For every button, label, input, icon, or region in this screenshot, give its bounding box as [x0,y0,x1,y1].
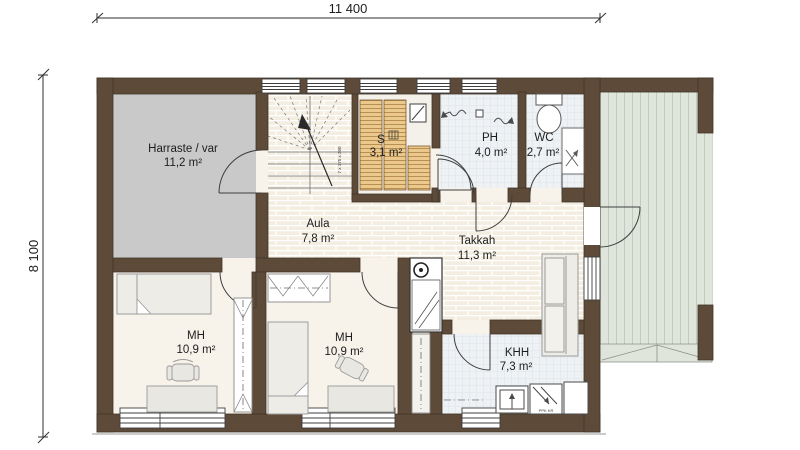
wc-cabinet-symbol [562,128,584,174]
window-symbol [262,79,300,93]
terrace-deck [598,90,712,362]
room-area-wc: 2,7 m² [527,147,560,159]
wall-left [97,78,113,432]
room-harraste-floor [113,94,256,258]
sink-symbol [496,386,528,413]
closet-symbol [268,274,330,302]
window-symbol [462,408,500,428]
window-symbol [307,79,345,93]
room-label-sauna: S [377,134,385,146]
washer-label: PPK KR [539,408,554,413]
room-area-harraste: 11,2 m² [164,157,202,169]
khh-closet-symbol [412,334,430,413]
floor-plan-drawing: 11 400 8 100 7 x 175 x 260 [0,0,800,450]
window-symbol [417,79,450,93]
window-symbol [462,79,497,93]
room-label-ph: PH [482,132,498,144]
terrace-door-opening [584,207,600,245]
room-area-ph: 4,0 m² [475,147,508,159]
dimension-left-label: 8 100 [26,240,41,273]
fireplace-symbol [410,258,442,332]
room-label-wc: WC [534,132,553,144]
room-area-mh1: 10,9 m² [177,344,216,356]
window-symbol [584,257,600,300]
window-symbol [360,79,397,93]
toilet-symbol [536,94,562,133]
bed-symbol [268,322,308,414]
washer-symbol: PPK KR [530,384,562,414]
desk-symbol [328,386,394,412]
sauna-heater-icon [410,104,426,122]
room-area-khh: 7,3 m² [500,361,533,373]
room-ph-floor [440,94,518,188]
dimension-top-label: 11 400 [329,1,368,16]
wall-right [584,78,600,432]
wardrobe-symbol [234,298,252,412]
room-area-mh2: 10,9 m² [325,346,364,358]
sofa-symbol [542,254,578,356]
windows-top [262,79,497,93]
floor-drain-icon [476,110,483,117]
desk-symbol [147,386,217,412]
room-label-aula: Aula [306,218,330,230]
window-right [584,257,600,300]
room-area-takkahuone: 11,3 m² [458,250,496,262]
room-area-aula: 7,8 m² [302,233,335,245]
stair-dimension-note: 7 x 175 x 260 [337,146,342,174]
room-label-mh2: MH [335,332,353,344]
room-label-takkahuone: Takkah [459,235,495,247]
room-label-khh: KHH [505,347,529,359]
room-label-mh1: MH [187,330,205,342]
khh-cabinet-symbol [564,382,588,414]
floor-plan-page: 11 400 8 100 7 x 175 x 260 [0,0,800,450]
room-area-sauna: 3,1 m² [370,147,403,159]
room-label-harraste: Harraste / var [148,143,218,155]
bed-symbol [117,274,211,314]
